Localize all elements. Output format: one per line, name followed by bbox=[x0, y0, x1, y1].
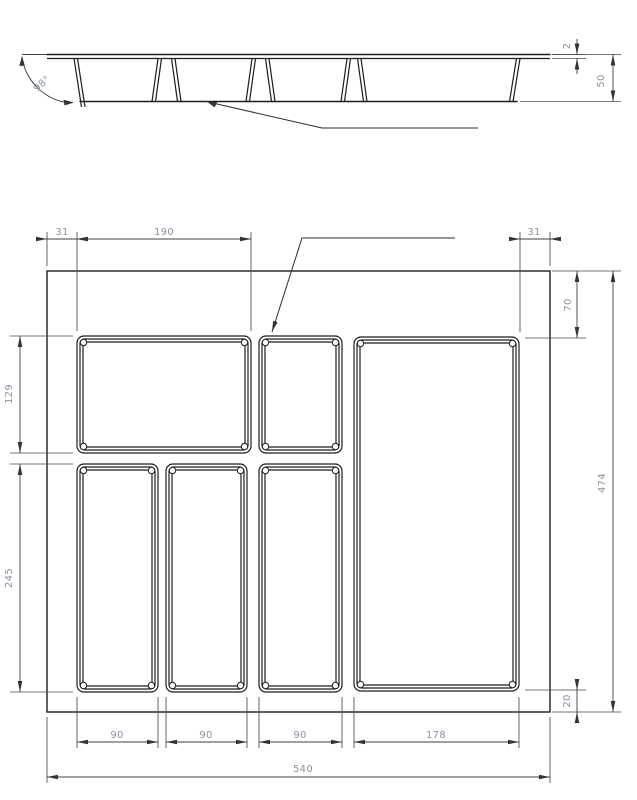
dimension-rim-thickness: 2 bbox=[552, 39, 586, 74]
section-divider-3 bbox=[341, 59, 367, 102]
compartment-bottom-middle bbox=[166, 464, 247, 692]
dim-label-margin-right: 31 bbox=[527, 227, 540, 238]
dim-label-top-inset: 70 bbox=[563, 298, 574, 311]
section-right-wall bbox=[510, 59, 521, 102]
plan-leader bbox=[272, 238, 455, 332]
dimension-section-height: 50 bbox=[520, 55, 621, 102]
dim-label-overall-height: 474 bbox=[597, 473, 608, 493]
dim-label-rim-thickness: 2 bbox=[562, 43, 573, 50]
compartment-bottom-right bbox=[259, 464, 342, 692]
dim-label-col1-width: 90 bbox=[110, 730, 123, 741]
dim-label-margin-left: 31 bbox=[55, 227, 68, 238]
technical-drawing-page: 98° 2 50 bbox=[0, 0, 637, 800]
plan-view: 31 190 31 129 245 70 474 20 bbox=[4, 227, 621, 783]
section-divider-1 bbox=[152, 59, 181, 102]
dimension-right-chain: 70 474 20 bbox=[562, 271, 613, 723]
compartment-top-left bbox=[77, 336, 251, 453]
extension-lines-top bbox=[47, 232, 550, 332]
dim-label-col2-width: 90 bbox=[199, 730, 212, 741]
section-left-wall bbox=[74, 59, 85, 108]
compartment-right-tall bbox=[354, 337, 519, 691]
plan-leader-line bbox=[272, 238, 455, 332]
section-divider-2 bbox=[246, 59, 275, 102]
compartment-bottom-left bbox=[77, 464, 158, 692]
angle-dimension: 98° bbox=[19, 55, 74, 106]
dim-label-section-height: 50 bbox=[596, 74, 607, 87]
dim-label-col3-width: 90 bbox=[293, 730, 306, 741]
dim-label-col4-width: 178 bbox=[426, 730, 446, 741]
dimension-top-chain: 31 190 31 bbox=[36, 227, 561, 239]
plan-leader-arrow bbox=[272, 321, 278, 332]
dim-label-row1-height: 129 bbox=[4, 384, 15, 404]
section-leader-line bbox=[206, 102, 478, 129]
dim-label-bottom-inset: 20 bbox=[562, 694, 573, 707]
dim-label-row2-height: 245 bbox=[4, 568, 15, 588]
technical-drawing-canvas: 98° 2 50 bbox=[0, 0, 637, 800]
dimension-bottom-chain: 90 90 90 178 540 bbox=[47, 730, 550, 777]
dim-label-wall-angle: 98° bbox=[32, 74, 53, 95]
dimension-left-chain: 129 245 bbox=[4, 336, 20, 692]
angle-arrow-top bbox=[19, 56, 25, 66]
angle-arrow-bottom bbox=[64, 100, 75, 106]
section-leader bbox=[206, 101, 478, 128]
dim-label-compartment1-width: 190 bbox=[154, 227, 174, 238]
rim-extension-lines bbox=[552, 55, 586, 59]
dim-label-overall-width: 540 bbox=[293, 764, 313, 775]
section-view: 98° 2 50 bbox=[19, 39, 621, 128]
compartment-top-middle bbox=[259, 336, 342, 453]
extension-lines-left bbox=[10, 336, 73, 692]
